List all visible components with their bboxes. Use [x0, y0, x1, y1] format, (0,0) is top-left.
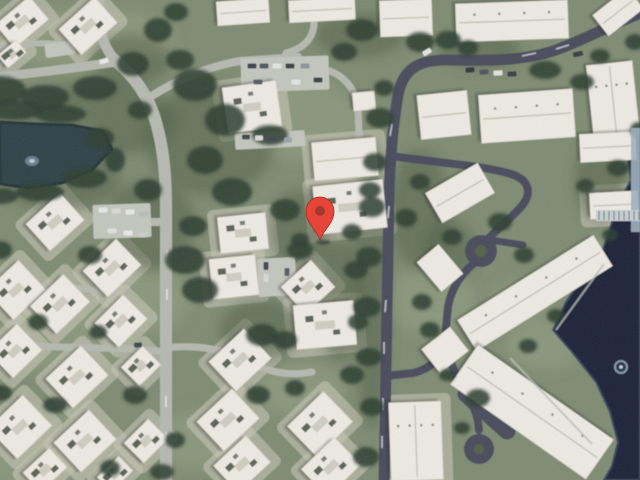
pin-shadow — [316, 239, 330, 244]
satellite-map[interactable] — [0, 0, 640, 480]
map-viewport[interactable] — [0, 0, 640, 480]
pin-inner-dot — [315, 206, 325, 216]
